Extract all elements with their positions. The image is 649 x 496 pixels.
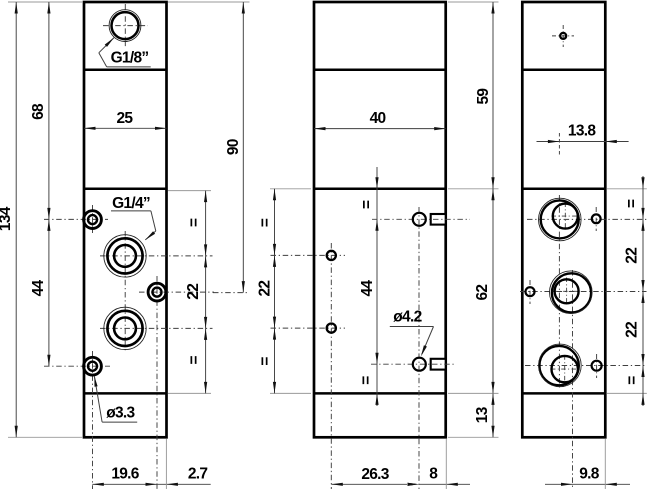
svg-text:9.8: 9.8	[579, 465, 600, 482]
svg-text:134: 134	[0, 206, 14, 231]
svg-text:22: 22	[624, 248, 641, 264]
svg-text:ø3.3: ø3.3	[106, 404, 135, 421]
svg-text:25: 25	[116, 110, 133, 127]
svg-text:=: =	[624, 199, 641, 208]
svg-text:19.6: 19.6	[111, 465, 139, 482]
svg-text:13.8: 13.8	[568, 123, 596, 140]
svg-text:=: =	[186, 218, 203, 227]
svg-text:22: 22	[256, 281, 273, 297]
svg-text:22: 22	[624, 322, 641, 338]
svg-text:ø4.2: ø4.2	[393, 308, 421, 325]
svg-text:44: 44	[30, 280, 47, 297]
svg-text:44: 44	[359, 280, 376, 297]
svg-text:=: =	[624, 376, 641, 385]
svg-text:=: =	[358, 200, 375, 209]
svg-text:22: 22	[185, 284, 202, 300]
svg-text:=: =	[358, 376, 375, 385]
svg-text:90: 90	[225, 139, 242, 155]
svg-text:59: 59	[475, 88, 492, 105]
svg-text:62: 62	[474, 285, 491, 301]
svg-text:G1/8”: G1/8”	[111, 49, 149, 66]
svg-text:G1/4”: G1/4”	[112, 195, 150, 212]
svg-text:=: =	[257, 357, 274, 366]
svg-text:68: 68	[30, 103, 47, 120]
svg-text:8: 8	[429, 466, 438, 483]
svg-text:=: =	[257, 218, 274, 227]
svg-text:13: 13	[474, 406, 491, 423]
svg-text:26.3: 26.3	[361, 466, 389, 483]
svg-text:=: =	[186, 355, 203, 364]
svg-text:2.7: 2.7	[188, 465, 208, 482]
svg-text:40: 40	[370, 110, 386, 127]
